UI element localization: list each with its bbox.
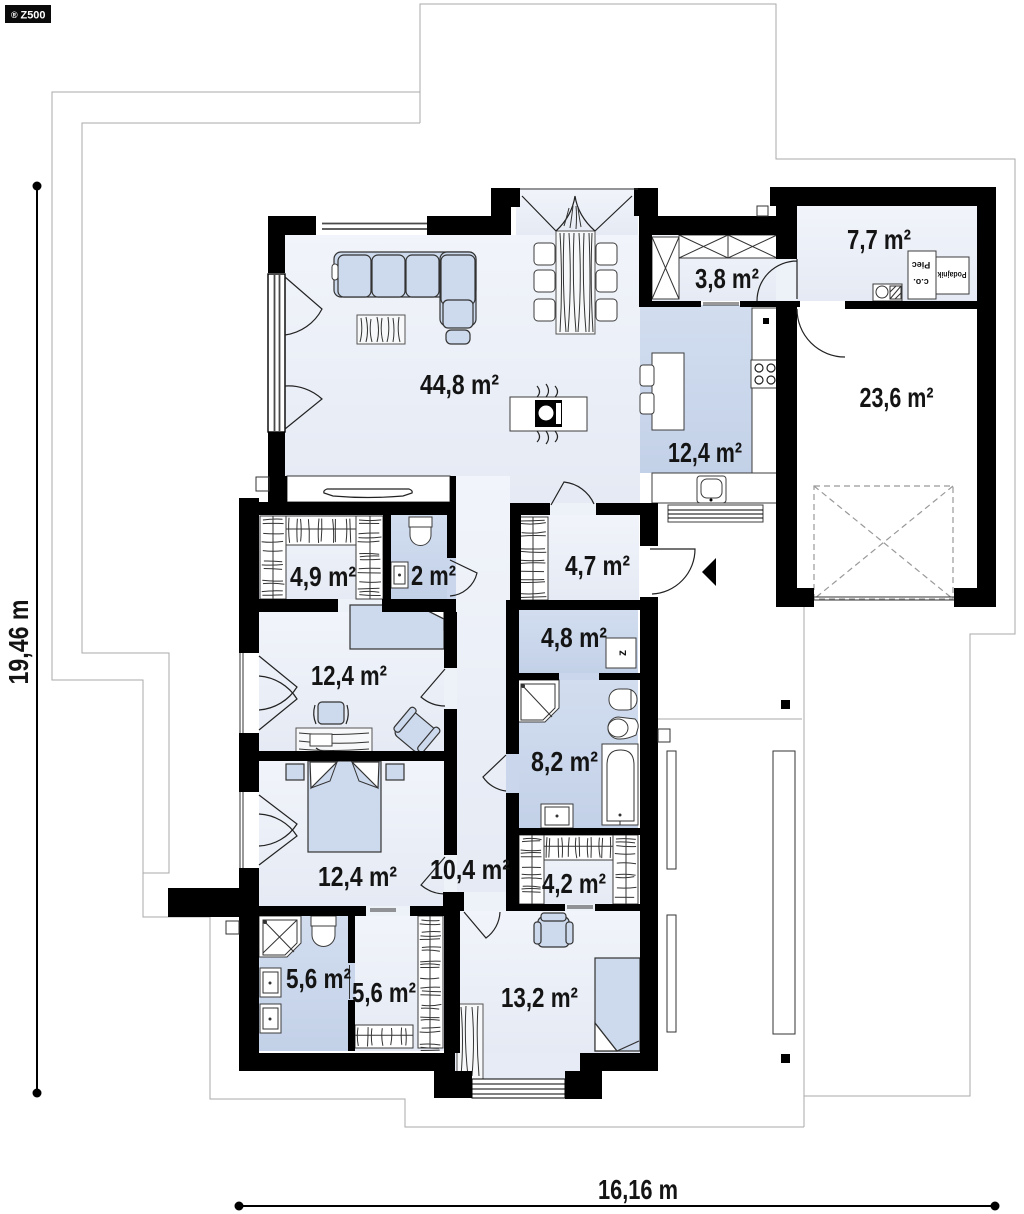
svg-text:10,4 m²: 10,4 m² [430, 854, 510, 885]
svg-text:19,46 m: 19,46 m [3, 600, 34, 685]
svg-text:7,7 m²: 7,7 m² [847, 224, 911, 255]
svg-text:®: ® [11, 10, 18, 20]
svg-text:13,2 m²: 13,2 m² [501, 982, 578, 1013]
svg-text:4,8 m²: 4,8 m² [541, 622, 607, 653]
svg-text:12,4 m²: 12,4 m² [668, 437, 742, 468]
svg-text:5,6 m²: 5,6 m² [352, 977, 416, 1008]
svg-text:Z500: Z500 [21, 10, 46, 22]
svg-text:5,6 m²: 5,6 m² [286, 963, 351, 994]
svg-text:4,9 m²: 4,9 m² [290, 561, 356, 592]
svg-text:c.o.: c.o. [913, 277, 929, 287]
svg-text:Podajnik: Podajnik [937, 270, 966, 280]
svg-text:Piec: Piec [912, 260, 931, 270]
svg-text:4,2 m²: 4,2 m² [542, 868, 606, 899]
svg-text:3,8 m²: 3,8 m² [695, 263, 759, 294]
svg-text:8,2 m²: 8,2 m² [531, 746, 598, 777]
svg-text:z: z [615, 650, 629, 656]
svg-text:12,4 m²: 12,4 m² [318, 861, 397, 892]
svg-text:16,16 m: 16,16 m [598, 1174, 678, 1205]
svg-text:2 m²: 2 m² [411, 560, 456, 591]
svg-text:12,4 m²: 12,4 m² [311, 660, 387, 691]
svg-text:44,8 m²: 44,8 m² [420, 369, 499, 400]
svg-text:4,7 m²: 4,7 m² [565, 550, 630, 581]
svg-text:23,6 m²: 23,6 m² [860, 382, 934, 413]
